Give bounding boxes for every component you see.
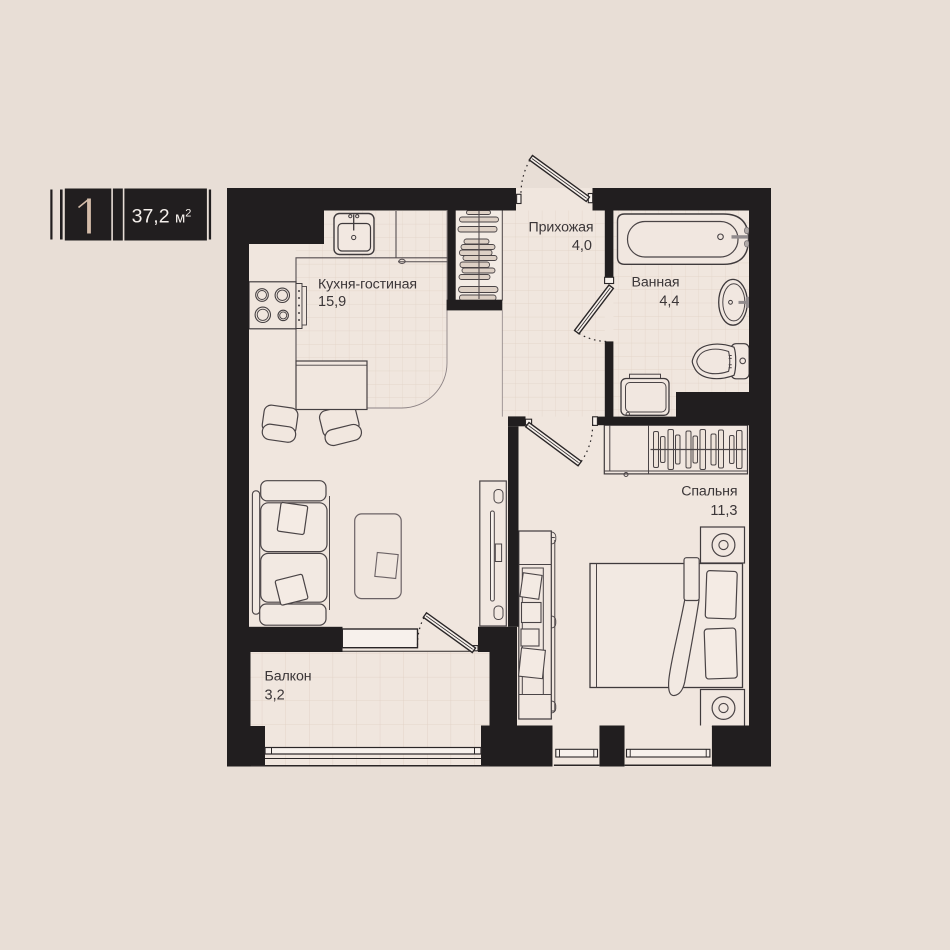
svg-text:Ванная: Ванная	[632, 275, 680, 291]
svg-text:3,2: 3,2	[265, 688, 285, 704]
svg-text:Балкон: Балкон	[265, 669, 312, 685]
svg-text:15,9: 15,9	[318, 294, 346, 310]
svg-text:Кухня-гостиная: Кухня-гостиная	[318, 277, 417, 293]
svg-text:4,4: 4,4	[659, 294, 679, 310]
svg-text:Прихожая: Прихожая	[529, 220, 594, 236]
svg-text:11,3: 11,3	[710, 503, 737, 519]
svg-text:Спальня: Спальня	[681, 484, 737, 500]
svg-text:4,0: 4,0	[572, 238, 592, 254]
svg-text:37,2 м2: 37,2 м2	[132, 206, 192, 228]
